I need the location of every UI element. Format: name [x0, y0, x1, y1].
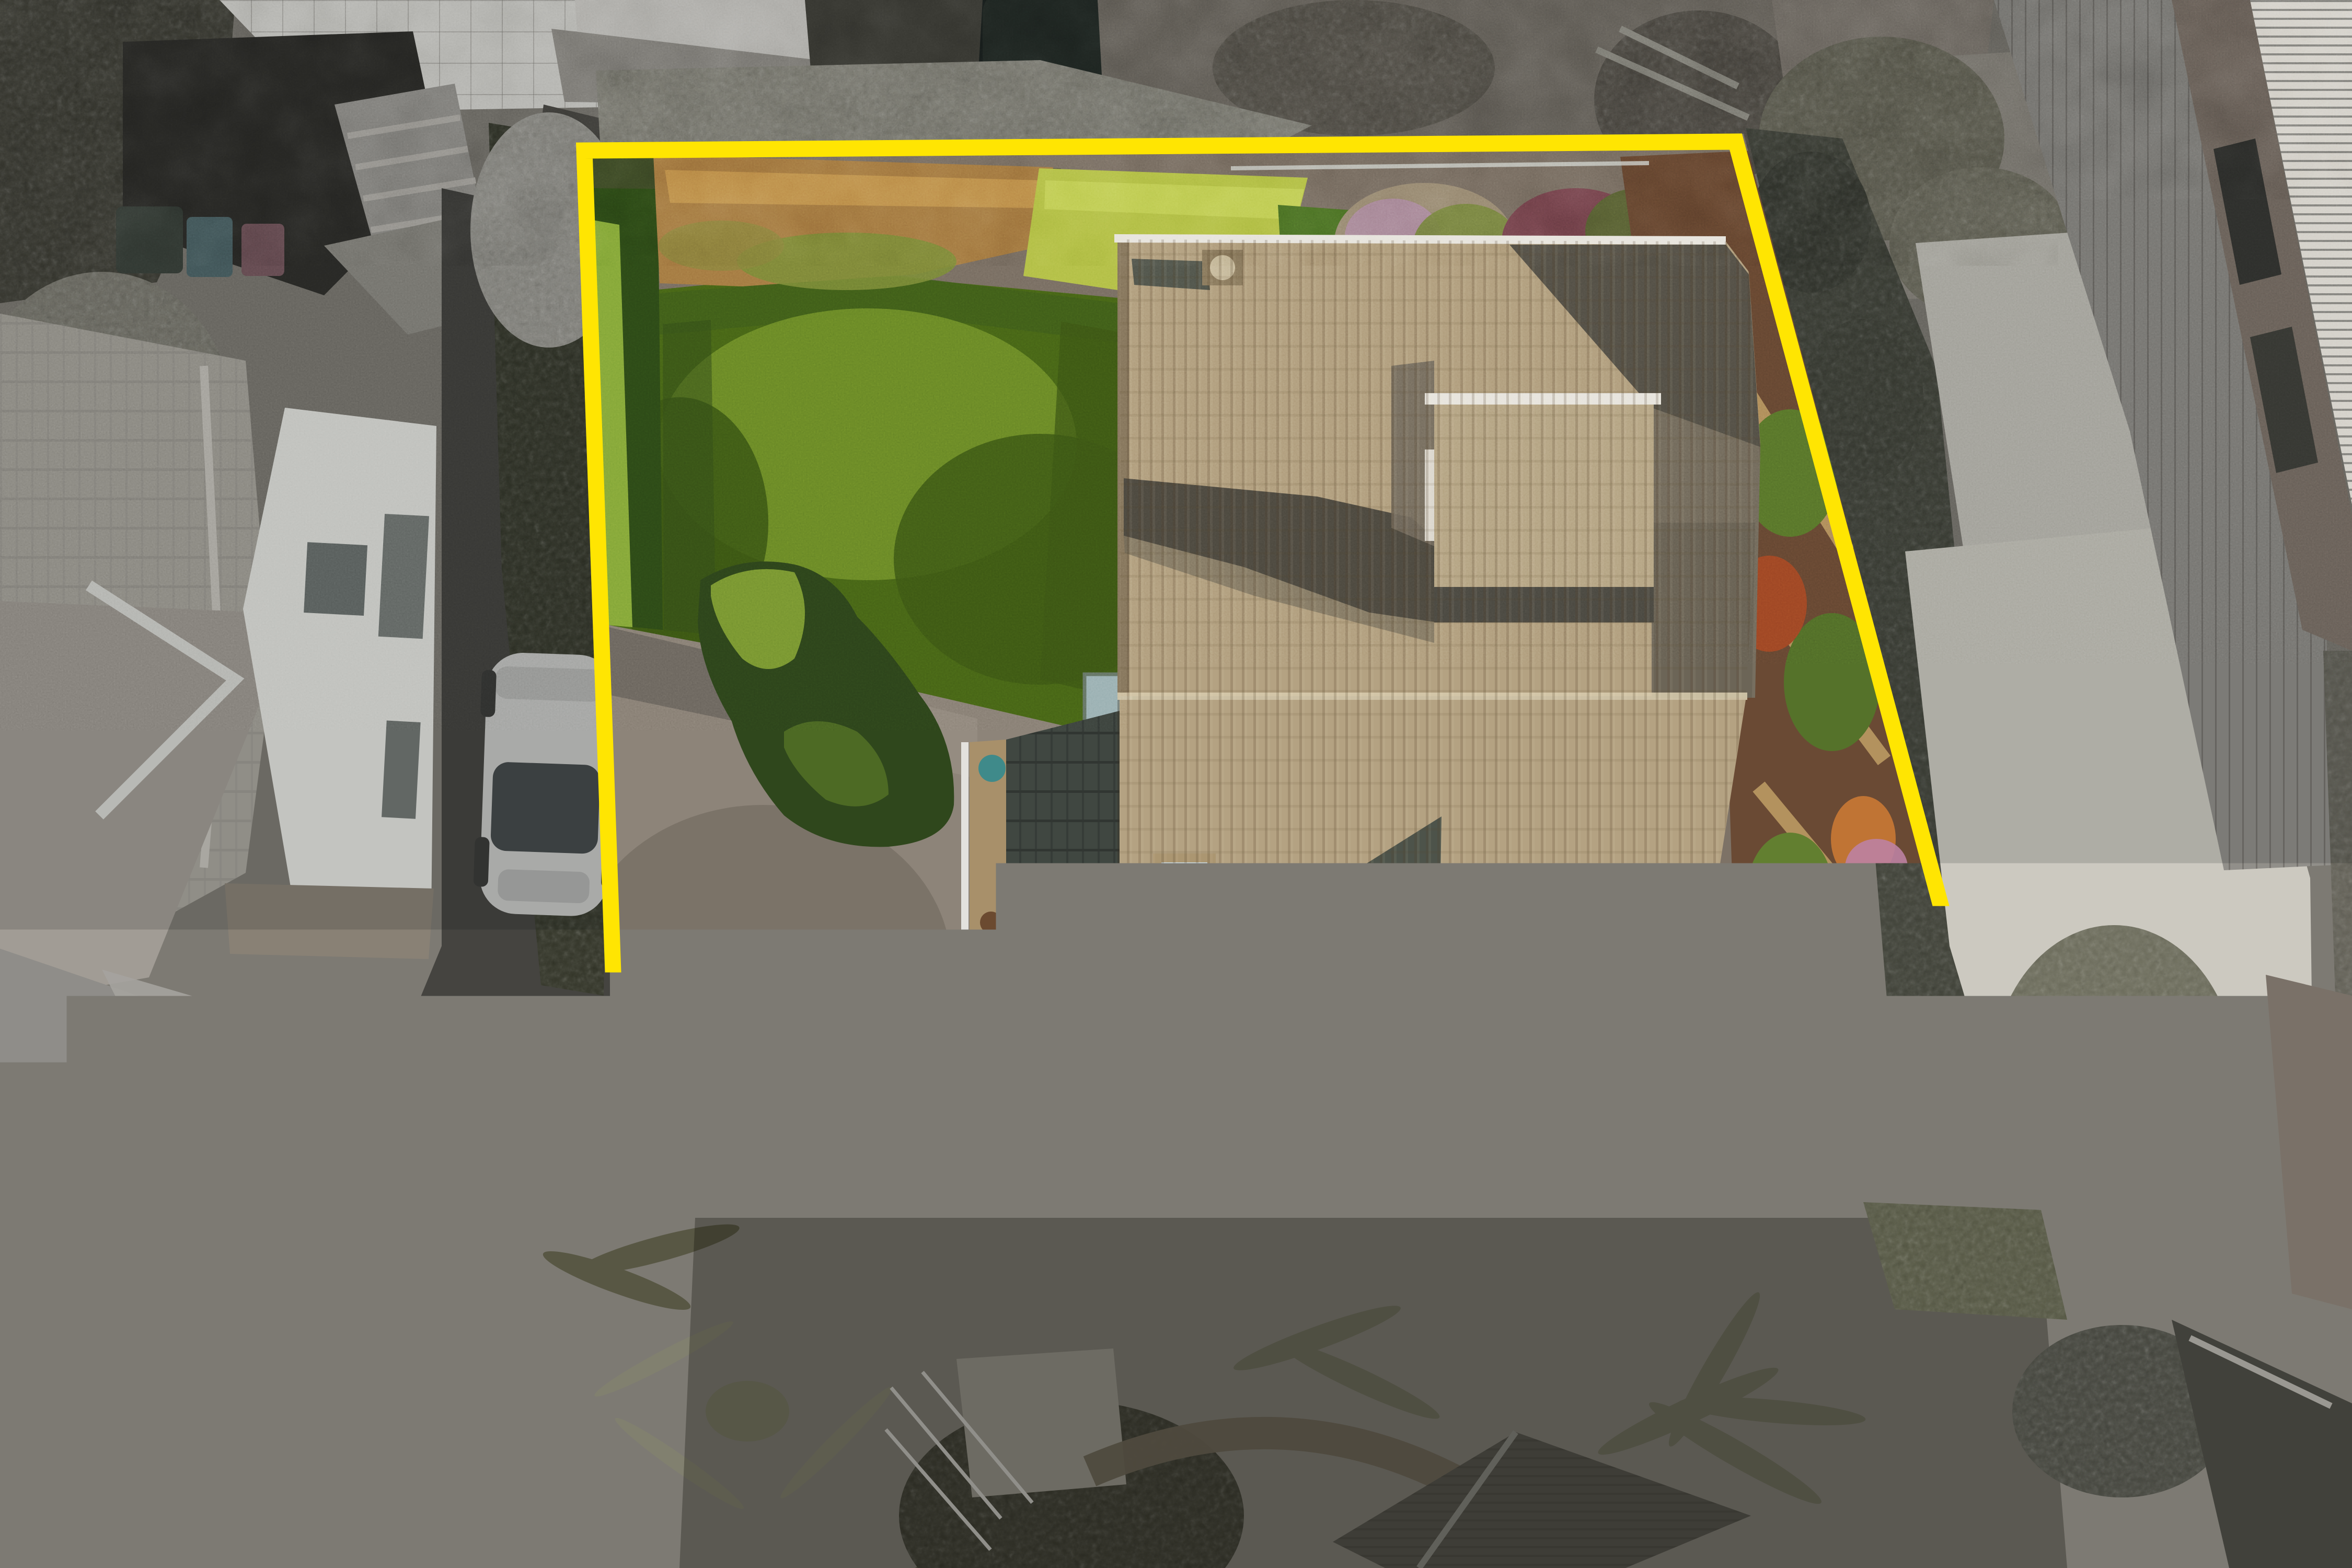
svg-text:Boundary lines are Indicative: Boundary lines are Indicative only	[41, 1504, 491, 1544]
